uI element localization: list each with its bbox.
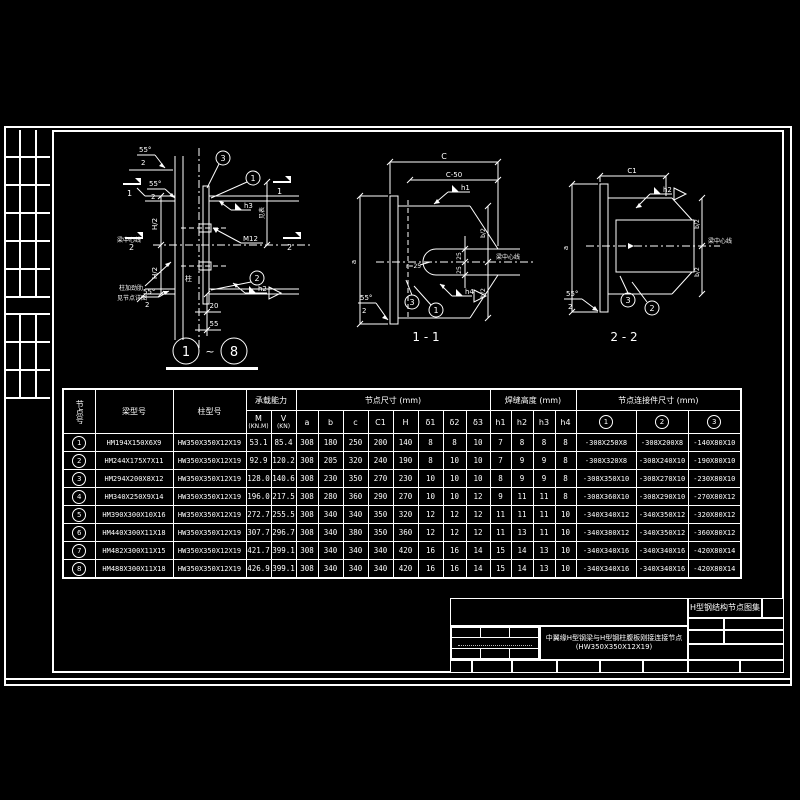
c-num: 308	[296, 524, 318, 542]
c-num: 11	[490, 524, 511, 542]
c-num: 350	[343, 470, 368, 488]
title-block-cell	[688, 660, 740, 673]
title-block-cell	[557, 660, 600, 673]
c-num: 320	[343, 452, 368, 470]
c-col: HW350X350X12X19	[173, 488, 246, 506]
node-ref-circle: 6	[72, 526, 86, 540]
frame-cell	[6, 343, 19, 369]
c-conn: -140X80X10	[688, 434, 741, 452]
node-ref-circle: 8	[72, 562, 86, 576]
c-no: 6	[63, 524, 95, 542]
c-num: 8	[418, 434, 443, 452]
frame-cell	[6, 315, 19, 341]
c-num: 307.7	[246, 524, 271, 542]
angle-note: 55°	[360, 294, 372, 302]
dim-25-top: 25	[456, 252, 463, 260]
c-num: 92.9	[246, 452, 271, 470]
weld-flag	[654, 187, 661, 194]
col-header-v: V(KN)	[271, 411, 296, 434]
c-col: HW350X350X12X19	[173, 542, 246, 560]
c-num: 7	[490, 434, 511, 452]
col-header-capacity: 承载能力	[246, 389, 296, 411]
c-num: 190	[393, 452, 418, 470]
c-conn: -340X340X16	[636, 560, 688, 579]
table-row: 8HM488X300X11X18HW350X350X12X19426.9399.…	[63, 560, 741, 579]
section-1-left: 1	[127, 189, 132, 198]
ref-2: 2	[649, 304, 654, 313]
c-beam: HM440X300X11X18	[95, 524, 173, 542]
c-num: 10	[443, 470, 466, 488]
col-header-h3: h3	[533, 411, 555, 434]
c-num: 128.0	[246, 470, 271, 488]
c-num: 12	[418, 524, 443, 542]
c-num: 250	[343, 434, 368, 452]
c-no: 8	[63, 560, 95, 579]
col-header-conn1: 1	[576, 411, 636, 434]
weld-flag	[456, 289, 463, 296]
col-header-beam: 梁型号	[95, 389, 173, 434]
title-ref-end: 8	[230, 345, 238, 360]
node-ref-circle: 7	[72, 544, 86, 558]
ref-1-leader	[414, 286, 431, 305]
c-num: 421.7	[246, 542, 271, 560]
c-num: 320	[393, 506, 418, 524]
c-num: 308	[296, 434, 318, 452]
frame-cell	[21, 371, 34, 397]
frame-cell	[6, 130, 19, 156]
c-num: 10	[466, 470, 490, 488]
c-num: 340	[368, 542, 393, 560]
c-num: 13	[511, 524, 533, 542]
c-num: 85.4	[271, 434, 296, 452]
c-num: 8	[555, 434, 576, 452]
frame-bottom-line	[4, 678, 792, 680]
c-num: 308	[296, 560, 318, 579]
c-col: HW350X350X12X19	[173, 452, 246, 470]
dim-h-half-top: H/2	[151, 218, 159, 230]
c-num: 9	[511, 452, 533, 470]
leader-arrow	[159, 163, 165, 168]
title-block-cell	[724, 630, 784, 644]
c-beam: HM340X250X9X14	[95, 488, 173, 506]
c-num: 200	[368, 434, 393, 452]
ref-3: 3	[220, 154, 225, 163]
c-num: 8	[555, 470, 576, 488]
frame-cell	[452, 628, 480, 637]
column-label: 柱	[185, 274, 192, 283]
title-block-cell	[688, 618, 724, 630]
frame-cell	[6, 371, 19, 397]
col-header-h: H	[393, 411, 418, 434]
c-conn: -420X80X14	[688, 560, 741, 579]
table-row: 5HM390X300X10X16HW350X350X12X19272.7255.…	[63, 506, 741, 524]
frame-cell	[21, 214, 34, 240]
c-num: 9	[533, 470, 555, 488]
c-no: 3	[63, 470, 95, 488]
c-num: 8	[418, 452, 443, 470]
c-conn: -340X340X12	[576, 506, 636, 524]
c-beam: HM390X300X10X16	[95, 506, 173, 524]
title-tilde: ~	[205, 345, 214, 358]
c-beam: HM488X300X11X18	[95, 560, 173, 579]
col-header-h1: h1	[490, 411, 511, 434]
title-ref-start: 1	[182, 345, 190, 360]
c-num: 230	[318, 470, 343, 488]
node-ref-circle: 4	[72, 490, 86, 504]
dim-20: 20	[210, 302, 219, 310]
c-num: 8	[511, 434, 533, 452]
c-num: 8	[443, 434, 466, 452]
angle-note-2-den: 2	[151, 193, 155, 201]
c-conn: -340X350X12	[636, 506, 688, 524]
frame-cell	[21, 343, 34, 369]
node-table: 节点号 梁型号 柱型号 承载能力 节点尺寸 (mm) 焊缝高度 (mm) 节点连…	[62, 388, 742, 579]
c-num: 240	[368, 452, 393, 470]
c-num: 16	[443, 560, 466, 579]
frame-cell	[21, 270, 34, 296]
c-num: 8	[555, 488, 576, 506]
c-beam: HM482X300X11X15	[95, 542, 173, 560]
dim-b-half-bot: b/2	[694, 267, 701, 277]
c-num: 10	[466, 434, 490, 452]
signature-scribble	[458, 640, 531, 646]
c-num: 196.0	[246, 488, 271, 506]
c-num: 7	[490, 452, 511, 470]
frame-cell	[6, 186, 19, 212]
angle-note-3-den: 2	[145, 301, 149, 309]
c-num: 53.1	[246, 434, 271, 452]
c-num: 420	[393, 542, 418, 560]
node-ref-circle: 1	[72, 436, 86, 450]
col-header-connector: 节点连接件尺寸 (mm)	[576, 389, 741, 411]
c-num: 15	[490, 542, 511, 560]
detail-geometry	[129, 148, 313, 348]
frame-cell	[481, 628, 509, 637]
c-num: 14	[466, 542, 490, 560]
dim-right-label: 见表	[258, 207, 266, 219]
weld-h1-label: h1	[461, 184, 470, 192]
title-block-cell	[762, 598, 784, 618]
col-header-a: a	[296, 411, 318, 434]
c-no: 1	[63, 434, 95, 452]
c-num: 270	[393, 488, 418, 506]
dim-a: a	[562, 246, 570, 250]
c-num: 10	[555, 542, 576, 560]
ref-3: 3	[625, 296, 630, 305]
c-num: 426.9	[246, 560, 271, 579]
c-num: 420	[393, 560, 418, 579]
frame-cell	[510, 628, 538, 637]
c-num: 8	[533, 434, 555, 452]
c-col: HW350X350X12X19	[173, 560, 246, 579]
frame-cell	[510, 649, 538, 658]
c-conn: -340X380X12	[576, 524, 636, 542]
frame-cell	[37, 242, 50, 268]
angle-note-3: 55°	[143, 288, 155, 296]
node-ref-circle: 3	[72, 472, 86, 486]
section11-dims	[357, 159, 501, 327]
c-num: 340	[343, 506, 368, 524]
section-marks	[123, 182, 301, 238]
frame-cell	[37, 214, 50, 240]
angle-note-2: 55°	[149, 180, 161, 188]
drawing-title: 中翼缘H型钢梁与H型钢柱腹板刚接连接节点	[546, 634, 683, 643]
c-conn: -360X80X12	[688, 524, 741, 542]
angle-note-den: 2	[568, 303, 572, 311]
c-num: 270	[368, 470, 393, 488]
title-block-cell	[740, 660, 784, 673]
title-block-cell	[643, 660, 688, 673]
ref-2-leader	[632, 282, 647, 302]
frame-cell	[37, 158, 50, 184]
c-num: 14	[511, 542, 533, 560]
c-num: 10	[418, 488, 443, 506]
c-beam: HM294X200X8X12	[95, 470, 173, 488]
c-num: 16	[418, 542, 443, 560]
c-conn: -308X290X10	[636, 488, 688, 506]
c-num: 14	[466, 560, 490, 579]
weld-open-arrow	[674, 188, 686, 200]
title-block-cell	[688, 630, 724, 644]
title-block-cell	[724, 618, 784, 630]
frame-cell	[21, 186, 34, 212]
frame-cell	[37, 371, 50, 397]
frame-cell	[21, 158, 34, 184]
c-num: 180	[318, 434, 343, 452]
ref-3-leader	[207, 164, 219, 188]
c-num: 8	[490, 470, 511, 488]
c-num: 399.1	[271, 560, 296, 579]
c-num: 308	[296, 542, 318, 560]
leader-arrow	[219, 201, 224, 206]
ref-3-leader	[406, 280, 412, 295]
angle-note-1-den: 2	[141, 159, 145, 167]
c-conn: -308X320X8	[576, 452, 636, 470]
c-num: 350	[368, 506, 393, 524]
c-num: 11	[490, 506, 511, 524]
weld-flag	[235, 203, 242, 210]
c-num: 12	[418, 506, 443, 524]
c-no: 7	[63, 542, 95, 560]
dim-a: a	[350, 260, 358, 264]
c-col: HW350X350X12X19	[173, 470, 246, 488]
c-num: 15	[490, 560, 511, 579]
title-block-empty-cell	[450, 598, 688, 626]
ref-3-leader	[620, 276, 628, 293]
frame-cell	[6, 242, 19, 268]
frame-cell	[37, 315, 50, 341]
c-num: 360	[393, 524, 418, 542]
c-num: 340	[318, 524, 343, 542]
c-conn: -308X270X10	[636, 470, 688, 488]
c-conn: -340X340X16	[576, 560, 636, 579]
angle-note-1: 55°	[139, 146, 151, 154]
table-row: 6HM440X300X11X18HW350X350X12X19307.7296.…	[63, 524, 741, 542]
c-num: 13	[533, 560, 555, 579]
c-num: 340	[343, 560, 368, 579]
c-no: 5	[63, 506, 95, 524]
c-num: 9	[511, 470, 533, 488]
c-conn: -320X80X12	[688, 506, 741, 524]
drawing-title-cell: 中翼缘H型钢梁与H型钢柱腹板刚接连接节点 (HW350X350X12X19)	[540, 626, 688, 660]
ref-2: 2	[254, 274, 259, 283]
c-conn: -308X350X10	[576, 470, 636, 488]
ref-1: 1	[433, 306, 438, 315]
c-conn: -420X80X14	[688, 542, 741, 560]
c-num: 340	[343, 542, 368, 560]
c-no: 4	[63, 488, 95, 506]
c-conn: -308X360X10	[576, 488, 636, 506]
frame-cell	[6, 158, 19, 184]
signature-cell	[452, 638, 538, 647]
beam-centerline-label: 梁中心线	[496, 253, 520, 261]
c-num: 399.1	[271, 542, 296, 560]
c-num: 9	[490, 488, 511, 506]
c-num: 340	[368, 560, 393, 579]
c-num: 360	[343, 488, 368, 506]
stiffener-note-1: 柱加劲肋	[119, 284, 143, 292]
c-num: 280	[318, 488, 343, 506]
section-title: 1 - 1	[412, 330, 439, 344]
c-col: HW350X350X12X19	[173, 506, 246, 524]
c-num: 14	[511, 560, 533, 579]
frame-cell	[37, 130, 50, 156]
detail-drawing: H/2 H/2 见表 20 55 梁中心线 柱 柱加劲肋 见节点详图 55° 2…	[115, 140, 320, 378]
atlas-title: H型钢结构节点图集	[688, 598, 762, 618]
c-num: 308	[296, 452, 318, 470]
c-num: 11	[511, 488, 533, 506]
c-conn: -190X80X10	[688, 452, 741, 470]
node-ref-circle: 2	[72, 454, 86, 468]
col-header-m: M(KN.M)	[246, 411, 271, 434]
c-num: 290	[368, 488, 393, 506]
title-block-cell	[600, 660, 643, 673]
c-conn: -308X240X10	[636, 452, 688, 470]
c-num: 11	[511, 506, 533, 524]
c-num: 308	[296, 488, 318, 506]
drawing-title-spec: (HW350X350X12X19)	[576, 643, 653, 652]
dim-c1: C1	[627, 167, 636, 175]
signature-strip	[6, 130, 50, 672]
c-beam: HM194X150X6X9	[95, 434, 173, 452]
col-header-conn2: 2	[636, 411, 688, 434]
c-num: 12	[443, 506, 466, 524]
col-header-conn3: 3	[688, 411, 741, 434]
table-row: 7HM482X300X11X15HW350X350X12X19421.7399.…	[63, 542, 741, 560]
section-1-right: 1	[277, 187, 282, 196]
dim-b-half-top: b/2	[694, 219, 701, 229]
bolt-label: M12	[243, 235, 258, 243]
col-header-b: b	[318, 411, 343, 434]
c-num: 10	[555, 506, 576, 524]
c-num: 272.7	[246, 506, 271, 524]
c-num: 140	[393, 434, 418, 452]
table-row: 2HM244X175X7X11HW350X350X12X1992.9120.23…	[63, 452, 741, 470]
col-header-d2: δ2	[443, 411, 466, 434]
c-num: 10	[555, 524, 576, 542]
table-row: 1HM194X150X6X9HW350X350X12X1953.185.4308…	[63, 434, 741, 452]
title-block-signature-grid	[450, 626, 540, 660]
c-num: 217.5	[271, 488, 296, 506]
angle-note: 55°	[566, 290, 578, 298]
c-num: 12	[466, 524, 490, 542]
col-header-h2: h2	[511, 411, 533, 434]
c-conn: -230X80X10	[688, 470, 741, 488]
c-num: 350	[368, 524, 393, 542]
c-num: 16	[418, 560, 443, 579]
c-num: 9	[533, 452, 555, 470]
c-num: 12	[466, 506, 490, 524]
section-2-left: 2	[129, 243, 134, 252]
frame-cell	[452, 649, 480, 658]
col-header-node: 节点号	[63, 389, 95, 434]
c-num: 11	[533, 506, 555, 524]
dim-b-half-top: b/2	[480, 228, 487, 238]
c-num: 308	[296, 506, 318, 524]
c-num: 340	[318, 560, 343, 579]
c-num: 12	[443, 524, 466, 542]
c-num: 10	[466, 452, 490, 470]
frame-cell	[6, 214, 19, 240]
weld-h4-label: h4	[465, 288, 474, 296]
frame-cell	[21, 315, 34, 341]
frame-cell	[21, 130, 34, 156]
c-no: 2	[63, 452, 95, 470]
weld-flag	[452, 185, 459, 192]
c-col: HW350X350X12X19	[173, 434, 246, 452]
c-num: 140.6	[271, 470, 296, 488]
c-num: 308	[296, 470, 318, 488]
c-num: 10	[443, 488, 466, 506]
col-header-d3: δ3	[466, 411, 490, 434]
c-num: 205	[318, 452, 343, 470]
title-block-cell	[688, 644, 784, 660]
ref-3: 3	[409, 298, 414, 307]
c-num: 120.2	[271, 452, 296, 470]
col-header-h4: h4	[555, 411, 576, 434]
frame-cell	[37, 186, 50, 212]
c-num: 340	[318, 542, 343, 560]
col-header-c: c	[343, 411, 368, 434]
dim-25-bot: 25	[456, 266, 463, 274]
c-conn: -308X200X8	[636, 434, 688, 452]
section-1-1-drawing: C C-50 a 25 25 b/2 b/2 梁中心线 r=25 h1 h4 3…	[348, 148, 545, 345]
leader-arrow	[636, 203, 642, 208]
section-2-right: 2	[287, 243, 292, 252]
col-header-c1: C1	[368, 411, 393, 434]
title-block-cell	[450, 660, 472, 673]
c-conn: -340X350X12	[636, 524, 688, 542]
col-header-weld: 焊缝高度 (mm)	[490, 389, 576, 411]
beam-centerline-label: 梁中心线	[708, 237, 732, 245]
table-row: 4HM340X250X9X14HW350X350X12X19196.0217.5…	[63, 488, 741, 506]
c-num: 11	[533, 524, 555, 542]
c-num: 380	[343, 524, 368, 542]
centerline-weld-mark	[628, 243, 634, 249]
frame-cell	[6, 399, 50, 672]
table-row: 3HM294X200X8X12HW350X350X12X19128.0140.6…	[63, 470, 741, 488]
node-ref-circle: 5	[72, 508, 86, 522]
frame-cell	[37, 270, 50, 296]
section-2-2-drawing: C1 a b/2 b/2 梁中心线 h2 3 2 55° 2 2 - 2	[560, 148, 750, 345]
c-num: 12	[466, 488, 490, 506]
c-num: 340	[318, 506, 343, 524]
c-num: 13	[533, 542, 555, 560]
c-num: 16	[443, 542, 466, 560]
weld-h2-label: h2	[258, 285, 267, 293]
title-underline	[166, 367, 258, 370]
weld-h3-label: h3	[244, 202, 253, 210]
